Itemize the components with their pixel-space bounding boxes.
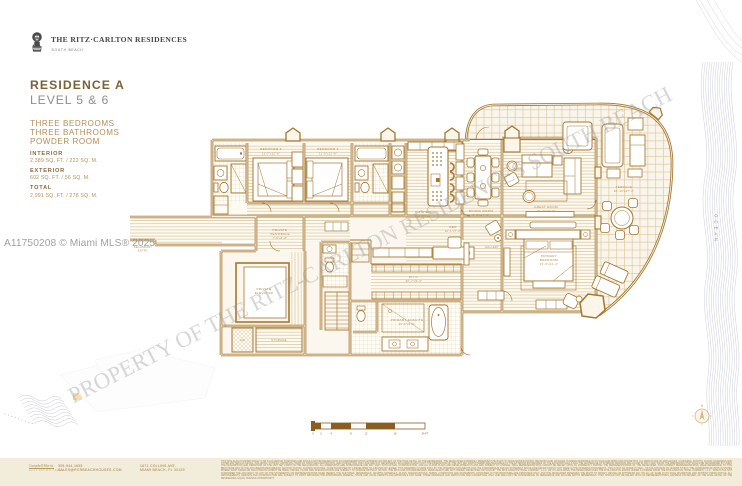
svg-text:BEDROOM 2: BEDROOM 2 [317, 147, 338, 151]
svg-text:16'-8"x9'-8": 16'-8"x9'-8" [399, 322, 416, 326]
svg-text:24 FT: 24 FT [422, 432, 429, 436]
svg-text:16'-7"x16'-3": 16'-7"x16'-3" [537, 209, 555, 213]
svg-text:36'-10"x27'-4": 36'-10"x27'-4" [614, 189, 634, 193]
svg-text:O C E A N: O C E A N [714, 214, 719, 242]
svg-text:20'-7"x5'-4": 20'-7"x5'-4" [406, 279, 423, 283]
svg-text:A/C: A/C [240, 338, 245, 342]
svg-text:GREAT ROOM: GREAT ROOM [534, 205, 558, 209]
svg-text:12: 12 [365, 432, 368, 436]
svg-text:7'-9"x6'-8": 7'-9"x6'-8" [273, 236, 288, 240]
svg-text:11'-2"x12'-6": 11'-2"x12'-6" [262, 152, 280, 156]
svg-text:13'-0"x14'-4": 13'-0"x14'-4" [540, 262, 558, 266]
svg-text:ENTRY: ENTRY [138, 250, 148, 253]
svg-text:0: 0 [312, 432, 314, 436]
svg-text:11'-5"x12'-8": 11'-5"x12'-8" [319, 152, 337, 156]
svg-text:DINING ROOM: DINING ROOM [469, 209, 494, 213]
svg-text:4: 4 [330, 432, 332, 436]
svg-text:8: 8 [350, 432, 352, 436]
svg-text:TERRACE: TERRACE [616, 185, 633, 189]
svg-text:VESTIBULE: VESTIBULE [270, 232, 290, 236]
svg-text:16: 16 [394, 432, 397, 436]
svg-text:W.I.C.: W.I.C. [409, 275, 419, 279]
svg-text:BEDROOM: BEDROOM [540, 258, 558, 262]
svg-text:STORAGE: STORAGE [271, 338, 287, 342]
svg-text:DEN: DEN [449, 225, 456, 229]
svg-text:N: N [701, 404, 704, 408]
svg-text:PRIMARY ENSUITE: PRIMARY ENSUITE [391, 318, 424, 322]
svg-text:2: 2 [320, 432, 322, 436]
svg-text:10'-1"x7'-6": 10'-1"x7'-6" [445, 229, 462, 233]
svg-text:GALLERY: GALLERY [485, 245, 499, 249]
svg-text:9'-9"x14'-6": 9'-9"x14'-6" [473, 213, 490, 217]
svg-text:BEDROOM 3: BEDROOM 3 [260, 147, 281, 151]
